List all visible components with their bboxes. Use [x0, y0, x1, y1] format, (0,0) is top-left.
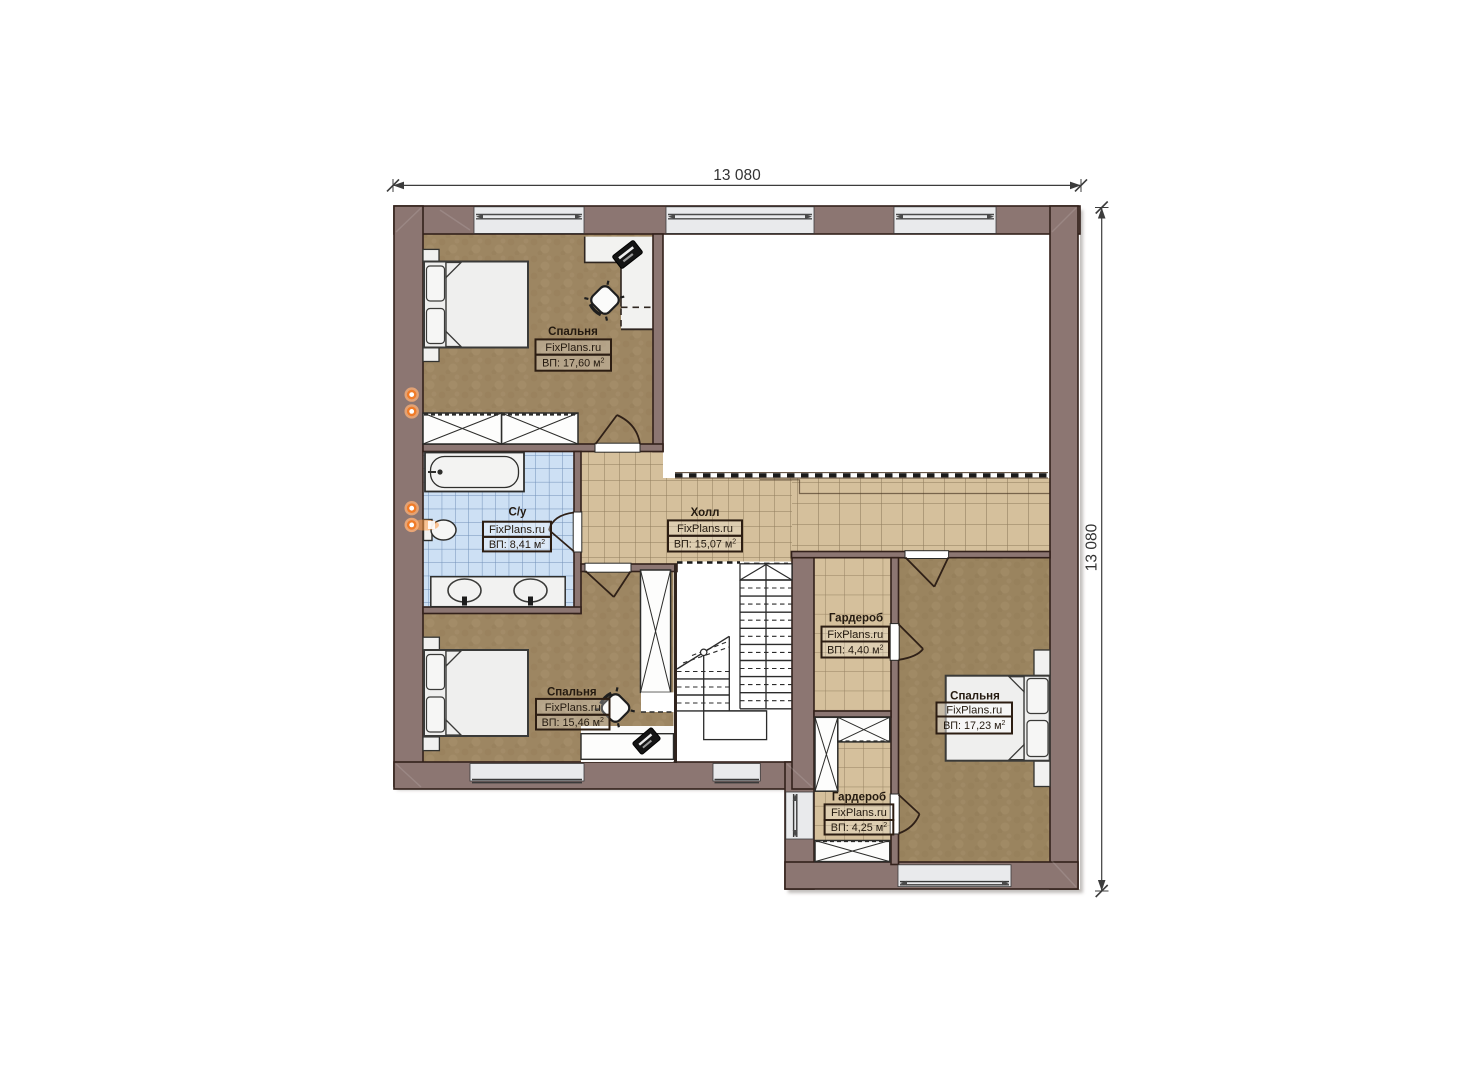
- svg-text:FixPlans.ru: FixPlans.ru: [677, 523, 733, 535]
- svg-text:ВП: 17,60 м2: ВП: 17,60 м2: [542, 358, 604, 370]
- svg-text:ВП: 8,41 м2: ВП: 8,41 м2: [489, 539, 545, 551]
- svg-text:Холл: Холл: [691, 507, 720, 519]
- svg-text:FixPlans.ru: FixPlans.ru: [545, 342, 601, 354]
- svg-text:ВП: 4,25 м2: ВП: 4,25 м2: [831, 822, 887, 834]
- svg-text:ВП: 15,07 м2: ВП: 15,07 м2: [674, 539, 736, 551]
- svg-text:С/у: С/у: [509, 507, 528, 519]
- svg-text:Спальня: Спальня: [950, 691, 1000, 703]
- svg-text:FixPlans.ru: FixPlans.ru: [831, 807, 887, 819]
- svg-text:ВП: 15,46 м2: ВП: 15,46 м2: [542, 717, 604, 729]
- svg-text:13 080: 13 080: [713, 167, 761, 184]
- svg-text:FixPlans.ru: FixPlans.ru: [946, 704, 1002, 716]
- svg-text:FixPlans.ru: FixPlans.ru: [489, 524, 545, 536]
- svg-text:Спальня: Спальня: [547, 687, 597, 699]
- svg-text:ВП: 17,23 м2: ВП: 17,23 м2: [943, 720, 1005, 732]
- svg-text:13 080: 13 080: [1084, 523, 1101, 571]
- svg-text:Спальня: Спальня: [548, 326, 598, 338]
- svg-text:Гардероб: Гардероб: [829, 613, 883, 625]
- svg-text:FixPlans.ru: FixPlans.ru: [827, 629, 883, 641]
- svg-text:FixPlans.ru: FixPlans.ru: [545, 702, 601, 714]
- svg-text:ВП: 4,40 м2: ВП: 4,40 м2: [827, 644, 883, 656]
- svg-text:Гардероб: Гардероб: [832, 792, 886, 804]
